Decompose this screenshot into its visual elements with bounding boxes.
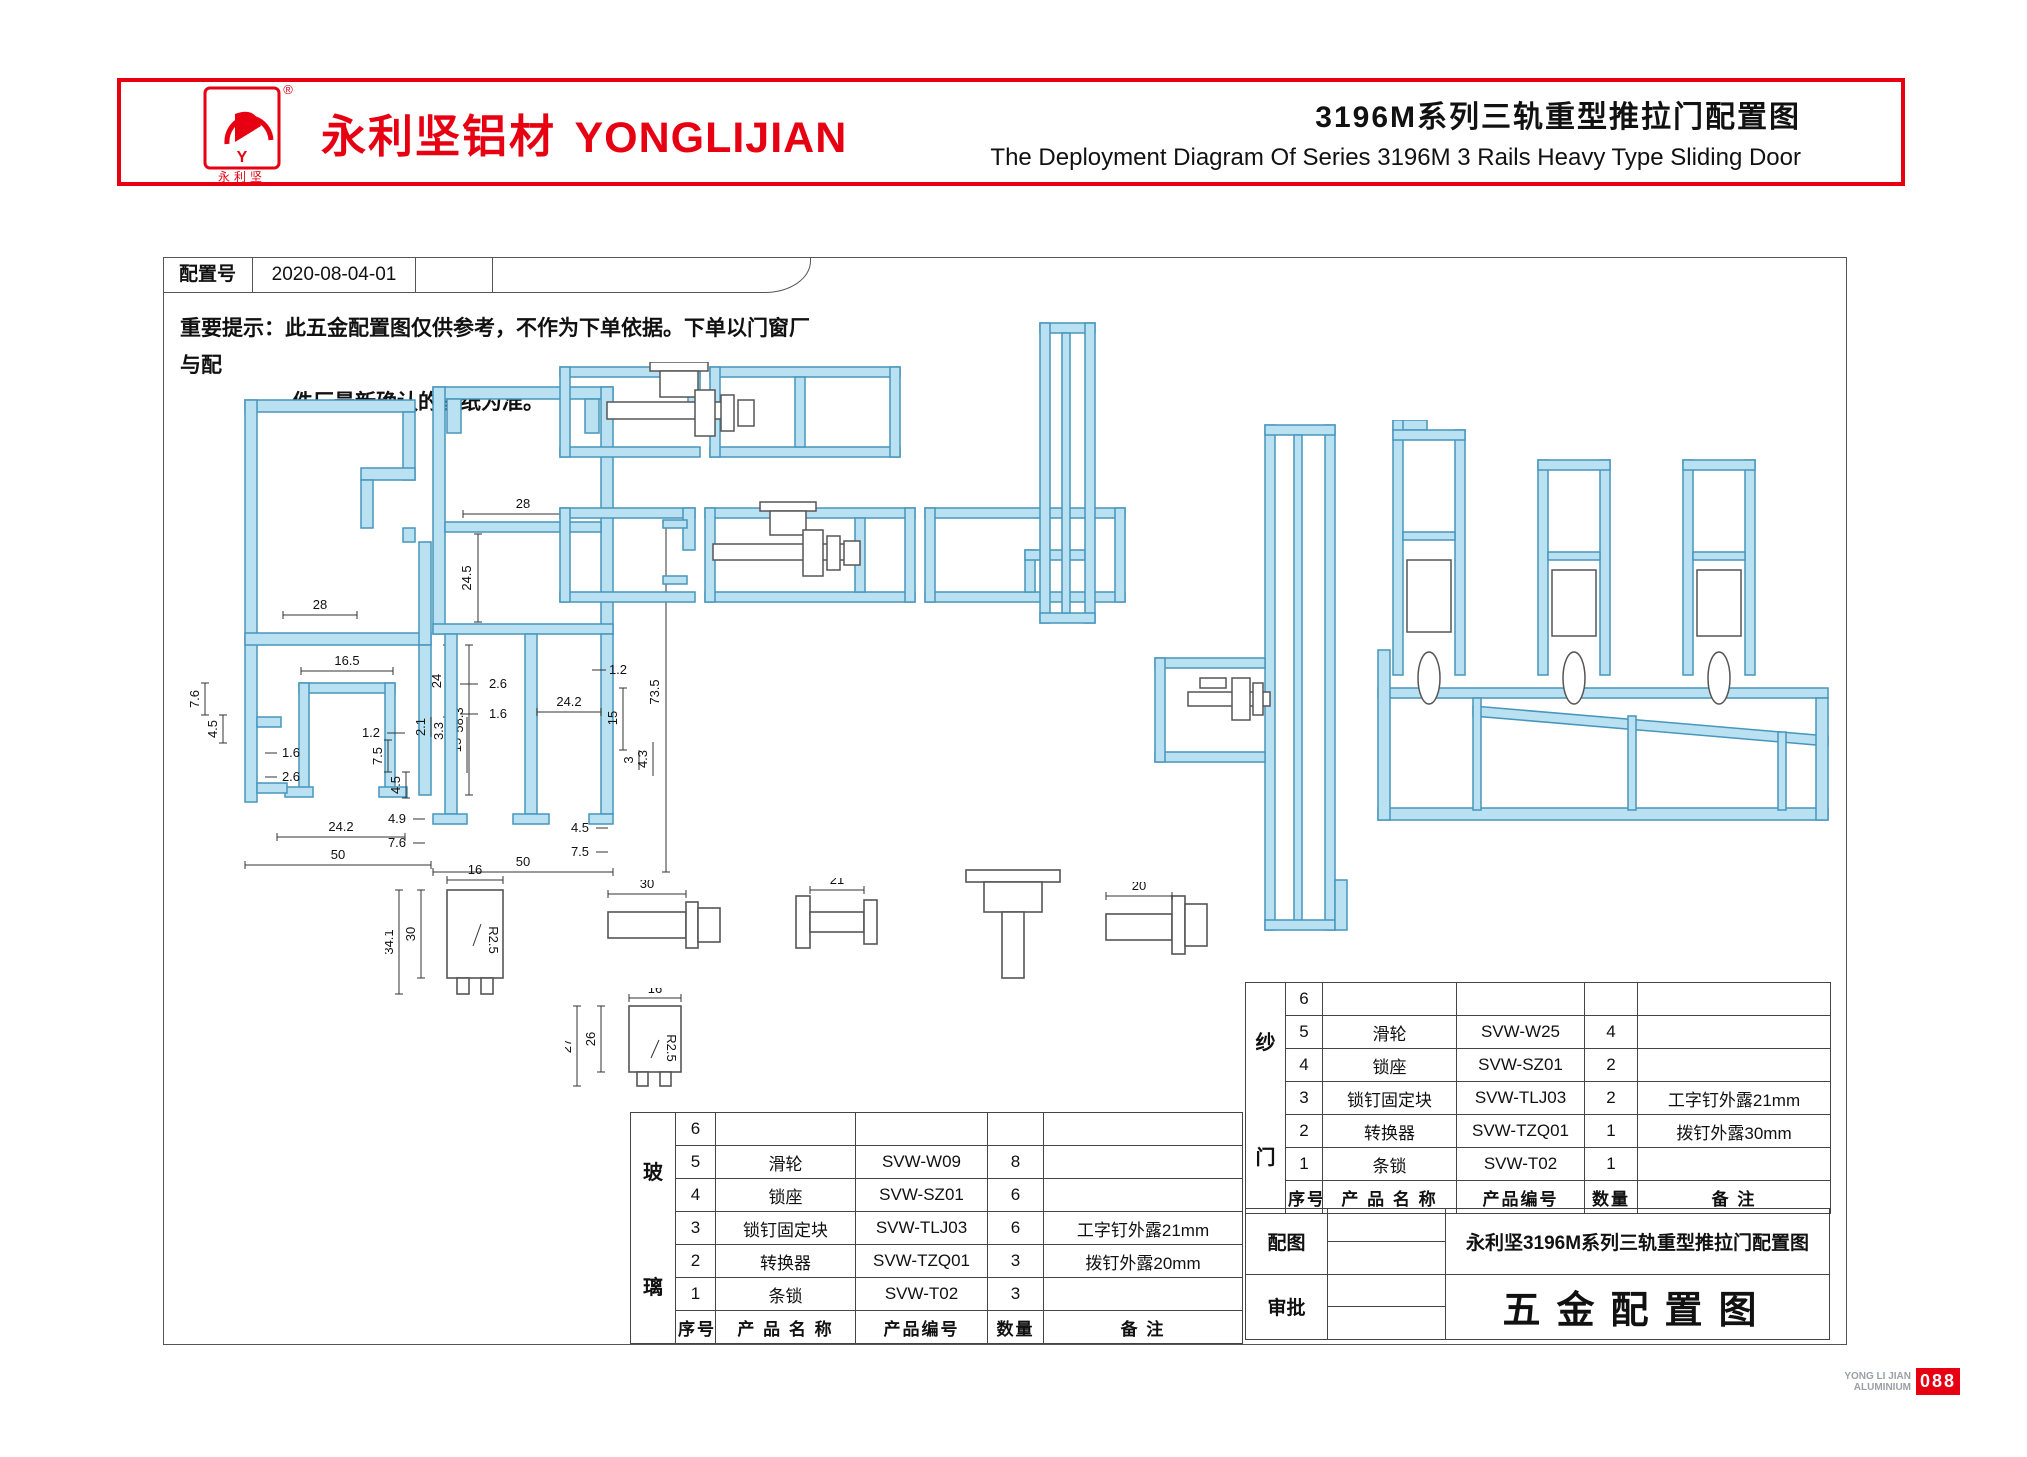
cell: 3 <box>1286 1082 1323 1115</box>
svg-text:24.2: 24.2 <box>556 694 581 709</box>
svg-text:R2.5: R2.5 <box>664 1034 679 1061</box>
brand-block: Y ® 永利坚 永利坚铝材 YONGLIJIAN <box>121 80 847 184</box>
svg-text:16: 16 <box>468 862 482 877</box>
horizontal-section-assembly-top <box>555 362 910 467</box>
drawing-title-text: 永利坚3196M系列三轨重型推拉门配置图 <box>1446 1209 1829 1274</box>
svg-text:2.6: 2.6 <box>282 769 300 784</box>
cell: 4 <box>1585 1016 1638 1049</box>
col-header: 备 注 <box>1044 1311 1243 1344</box>
cell: 2 <box>1286 1115 1323 1148</box>
group-char: 璃 <box>633 1271 673 1300</box>
brand-name-cn: 永利坚铝材 <box>321 111 556 162</box>
cell: 3 <box>676 1212 716 1245</box>
config-number-label: 配置号 <box>163 257 253 293</box>
part-lock-block-large-drawing: 16 34.1 30 R2.5 <box>385 862 515 1002</box>
cell: 拨钉外露30mm <box>1638 1115 1831 1148</box>
config-number-strip: 配置号 2020-08-04-01 <box>163 257 811 294</box>
brand-names: 永利坚铝材 YONGLIJIAN <box>321 100 847 165</box>
svg-text:15: 15 <box>605 711 620 725</box>
part-lock-block-small-drawing: 16 27 26 R2.5 <box>565 988 690 1096</box>
cell: 锁座 <box>1323 1049 1457 1082</box>
part-pin-20-drawing: 20 <box>1100 882 1215 960</box>
cell <box>1638 1016 1831 1049</box>
svg-text:1.2: 1.2 <box>609 662 627 677</box>
cell: 6 <box>988 1179 1044 1212</box>
cell: 条锁 <box>716 1278 856 1311</box>
yonglijian-logo-icon: Y ® 永利坚 <box>191 80 301 184</box>
col-header: 产品编号 <box>856 1311 988 1344</box>
cell: 条锁 <box>1323 1148 1457 1181</box>
cell: SVW-TZQ01 <box>856 1245 988 1278</box>
cell: 工字钉外露21mm <box>1044 1212 1243 1245</box>
cell <box>1044 1146 1243 1179</box>
cell <box>1044 1113 1243 1146</box>
sill-section-with-sashes-drawing <box>1373 420 1835 838</box>
cell: 拨钉外露20mm <box>1044 1245 1243 1278</box>
cell: 1 <box>676 1278 716 1311</box>
svg-text:27: 27 <box>565 1039 574 1053</box>
cell: 2 <box>1585 1082 1638 1115</box>
part-pin-30-drawing: 30 <box>600 880 730 965</box>
config-number-value: 2020-08-04-01 <box>253 257 416 293</box>
svg-text:73.5: 73.5 <box>647 679 662 704</box>
cell <box>1323 983 1457 1016</box>
cell: 8 <box>988 1146 1044 1179</box>
svg-text:R2.5: R2.5 <box>486 926 501 953</box>
cell: SVW-T02 <box>1457 1148 1585 1181</box>
col-header: 数量 <box>988 1311 1044 1344</box>
cell <box>1457 983 1585 1016</box>
cell: SVW-W25 <box>1457 1016 1585 1049</box>
screen-door-parts-table: 纱 门 6 5 滑轮 SVW-W25 4 4 锁座 SVW-SZ01 2 3 锁… <box>1245 982 1831 1214</box>
title-block-approve-row: 审批 五金配置图 <box>1246 1275 1829 1340</box>
cell: 锁钉固定块 <box>716 1212 856 1245</box>
col-header: 产 品 名 称 <box>716 1311 856 1344</box>
cell <box>1638 1049 1831 1082</box>
svg-text:Y: Y <box>237 149 248 166</box>
cell: 5 <box>1286 1016 1323 1049</box>
cell <box>1638 983 1831 1016</box>
title-block-config-row: 配图 永利坚3196M系列三轨重型推拉门配置图 <box>1246 1209 1829 1275</box>
cell: 1 <box>1585 1115 1638 1148</box>
cell: 4 <box>676 1179 716 1212</box>
title-block: 配图 永利坚3196M系列三轨重型推拉门配置图 审批 五金配置图 <box>1245 1208 1830 1340</box>
svg-text:28: 28 <box>313 597 327 612</box>
svg-text:20: 20 <box>1132 882 1146 893</box>
svg-text:34.1: 34.1 <box>385 929 396 954</box>
cell: 1 <box>1286 1148 1323 1181</box>
page-footer: YONG LI JIAN ALUMINIUM 088 <box>1760 1368 1960 1395</box>
svg-text:4.5: 4.5 <box>205 720 220 738</box>
cell: 锁座 <box>716 1179 856 1212</box>
config-rounded-cell <box>493 257 811 293</box>
cell: 滑轮 <box>1323 1016 1457 1049</box>
header: Y ® 永利坚 永利坚铝材 YONGLIJIAN 3196M系列三轨重型推拉门配… <box>117 78 1905 186</box>
cell <box>716 1113 856 1146</box>
mullion-section-with-lock <box>1150 420 1355 945</box>
svg-text:1.6: 1.6 <box>489 706 507 721</box>
cell: 3 <box>988 1278 1044 1311</box>
registered-mark: ® <box>283 82 293 97</box>
group-char: 玻 <box>633 1156 673 1185</box>
cell <box>1044 1179 1243 1212</box>
cell: 6 <box>1286 983 1323 1016</box>
svg-text:50: 50 <box>516 854 530 869</box>
doc-title-cn: 3196M系列三轨重型推拉门配置图 <box>990 92 1801 136</box>
svg-text:30: 30 <box>403 927 418 941</box>
cell: 3 <box>988 1245 1044 1278</box>
footer-brand-line1: YONG LI JIAN <box>1844 1371 1911 1382</box>
cell: SVW-SZ01 <box>1457 1049 1585 1082</box>
document-titles: 3196M系列三轨重型推拉门配置图 The Deployment Diagram… <box>990 92 1901 172</box>
cell <box>856 1113 988 1146</box>
cell: SVW-TLJ03 <box>856 1212 988 1245</box>
approval-label: 审批 <box>1246 1275 1328 1340</box>
cell: SVW-W09 <box>856 1146 988 1179</box>
cell: SVW-TZQ01 <box>1457 1115 1585 1148</box>
group-char: 纱 <box>1248 1026 1283 1055</box>
part-t-pin-drawing <box>958 860 1068 985</box>
hardware-diagram-title: 五金配置图 <box>1446 1275 1829 1340</box>
vertical-post-section <box>1035 318 1105 633</box>
cell: 工字钉外露21mm <box>1638 1082 1831 1115</box>
svg-text:4.3: 4.3 <box>635 750 650 768</box>
svg-text:7.5: 7.5 <box>370 747 385 765</box>
cell: 锁钉固定块 <box>1323 1082 1457 1115</box>
svg-text:50: 50 <box>331 847 345 862</box>
logo-subtext: 永利坚 <box>218 170 266 184</box>
cell <box>1585 983 1638 1016</box>
svg-text:28: 28 <box>516 496 530 511</box>
footer-brand: YONG LI JIAN ALUMINIUM <box>1844 1371 1911 1393</box>
svg-text:4.5: 4.5 <box>571 820 589 835</box>
doc-title-en: The Deployment Diagram Of Series 3196M 3… <box>990 144 1801 172</box>
svg-text:21: 21 <box>830 878 844 887</box>
svg-text:26: 26 <box>583 1032 598 1046</box>
cell: SVW-TLJ03 <box>1457 1082 1585 1115</box>
cell: 转换器 <box>716 1245 856 1278</box>
svg-text:1.6: 1.6 <box>282 745 300 760</box>
cell <box>1638 1148 1831 1181</box>
cell: 1 <box>1585 1148 1638 1181</box>
config-drawing-label: 配图 <box>1246 1209 1328 1274</box>
screen-group-label: 纱 门 <box>1246 983 1286 1214</box>
page-number-badge: 088 <box>1916 1368 1960 1395</box>
cell: 5 <box>676 1146 716 1179</box>
svg-text:2.6: 2.6 <box>489 676 507 691</box>
glass-door-parts-table: 玻 璃 6 5 滑轮 SVW-W09 8 4 锁座 SVW-SZ01 6 3 锁… <box>630 1112 1243 1344</box>
svg-text:7.5: 7.5 <box>571 844 589 859</box>
glass-group-label: 玻 璃 <box>631 1113 676 1344</box>
part-pin-21-drawing: 21 <box>788 878 893 968</box>
cell: 4 <box>1286 1049 1323 1082</box>
svg-text:4.5: 4.5 <box>388 776 403 794</box>
cell: 6 <box>988 1212 1044 1245</box>
cell: 2 <box>676 1245 716 1278</box>
cell <box>988 1113 1044 1146</box>
signature-cells <box>1328 1275 1446 1340</box>
cell: 2 <box>1585 1049 1638 1082</box>
cell: 转换器 <box>1323 1115 1457 1148</box>
cell <box>1044 1278 1243 1311</box>
signature-cells <box>1328 1209 1446 1274</box>
col-header: 序号 <box>676 1311 716 1344</box>
svg-text:24.5: 24.5 <box>459 565 474 590</box>
cell: 6 <box>676 1113 716 1146</box>
cell: SVW-T02 <box>856 1278 988 1311</box>
svg-text:30: 30 <box>640 880 654 891</box>
group-char: 门 <box>1248 1141 1283 1170</box>
config-empty-cell <box>416 257 493 293</box>
svg-text:7.6: 7.6 <box>187 690 202 708</box>
cell: 滑轮 <box>716 1146 856 1179</box>
brand-name-en: YONGLIJIAN <box>574 114 847 162</box>
svg-text:16: 16 <box>648 988 662 996</box>
svg-text:3: 3 <box>621 756 636 763</box>
cell: SVW-SZ01 <box>856 1179 988 1212</box>
footer-brand-line2: ALUMINIUM <box>1844 1382 1911 1393</box>
